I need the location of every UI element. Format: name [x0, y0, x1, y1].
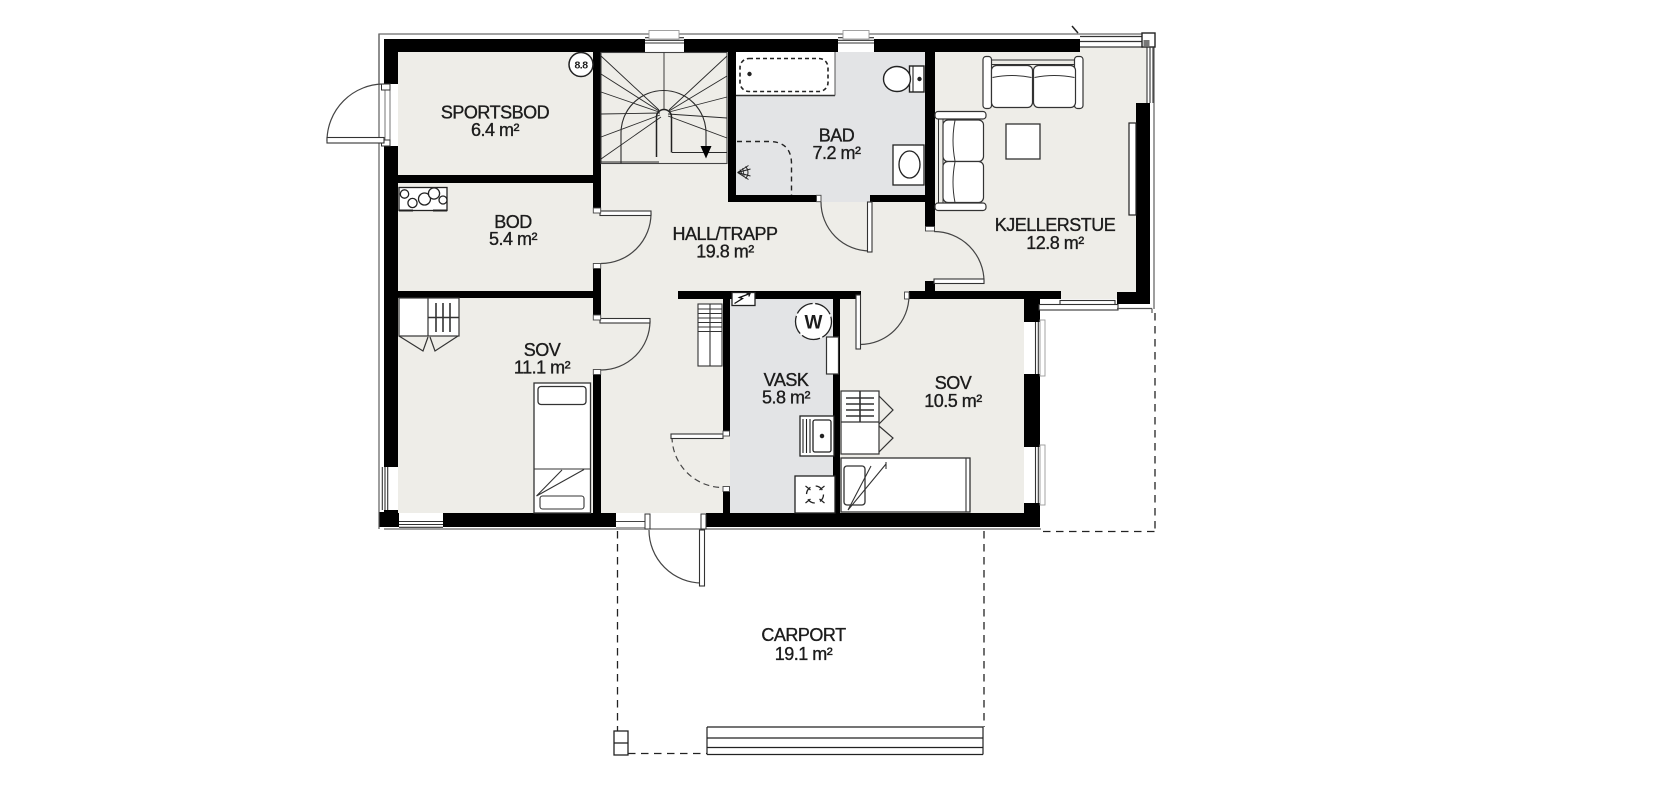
svg-text:SOV: SOV	[935, 373, 972, 393]
svg-text:8.8: 8.8	[574, 60, 588, 72]
svg-text:10.5 m²: 10.5 m²	[924, 391, 982, 411]
svg-text:12.8 m²: 12.8 m²	[1026, 233, 1084, 253]
svg-text:KJELLERSTUE: KJELLERSTUE	[995, 215, 1116, 235]
svg-text:6.4 m²: 6.4 m²	[471, 120, 520, 140]
svg-text:W: W	[805, 313, 823, 334]
svg-text:7.2 m²: 7.2 m²	[812, 143, 861, 163]
svg-text:11.1 m²: 11.1 m²	[514, 358, 571, 378]
svg-text:19.1 m²: 19.1 m²	[775, 644, 833, 664]
svg-text:5.4 m²: 5.4 m²	[489, 229, 538, 249]
svg-text:CARPORT: CARPORT	[761, 625, 846, 645]
svg-text:5.8 m²: 5.8 m²	[762, 388, 811, 408]
svg-text:19.8 m²: 19.8 m²	[696, 242, 754, 262]
